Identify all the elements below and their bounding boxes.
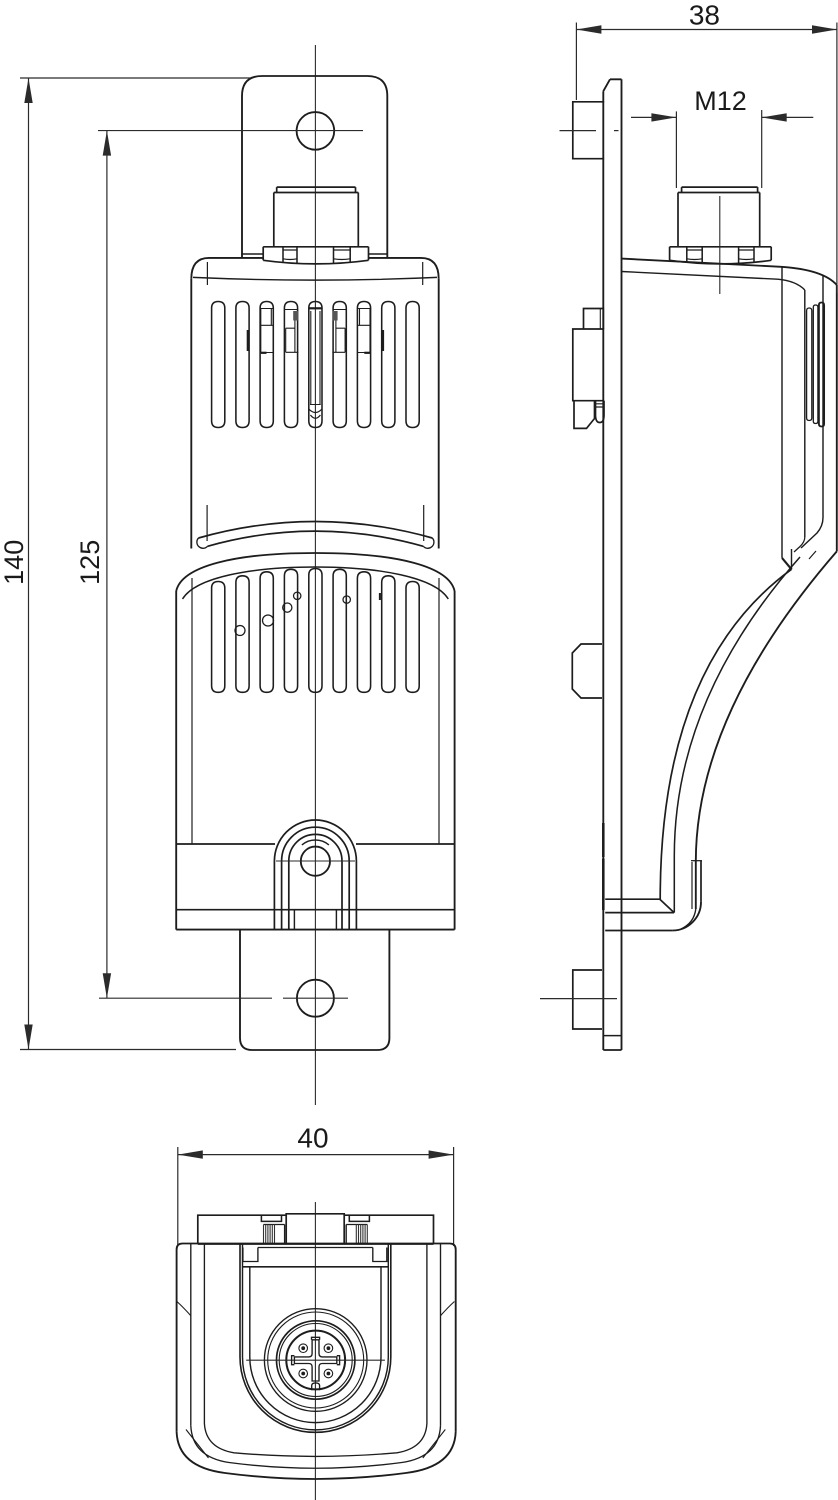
svg-text:140: 140 (0, 540, 29, 585)
svg-text:125: 125 (75, 540, 105, 585)
svg-text:38: 38 (689, 0, 720, 31)
svg-text:M12: M12 (694, 86, 747, 116)
svg-text:40: 40 (297, 1123, 328, 1154)
